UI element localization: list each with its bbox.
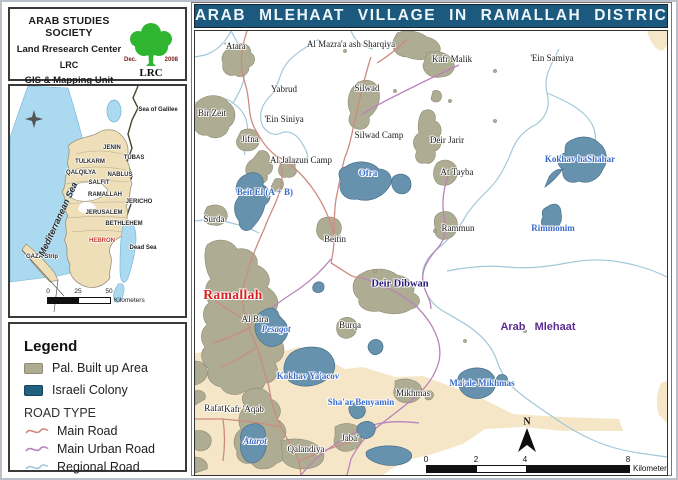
map-label-place: Silwad Camp — [355, 130, 404, 140]
legend-item-main-road: Main Road — [24, 424, 117, 438]
map-title: ARAB MLEHAAT VILLAGE IN RAMALLAH DISTRIC… — [194, 4, 668, 28]
map-label-place: 'Atara — [224, 41, 246, 51]
map-label-place: Yabrud — [271, 84, 297, 94]
inset-label: JERUSALEM — [85, 210, 122, 216]
map-label-place: Al Bira — [242, 314, 269, 324]
legend-item-colony: Israeli Colony — [24, 383, 128, 397]
scale-bar-tick: 0 — [424, 455, 428, 464]
regional-road-swatch-icon — [24, 461, 50, 473]
scale-bar-tick: 4 — [523, 455, 527, 464]
legend-item-label: Regional Road — [57, 460, 140, 474]
logo-date: Dec. 2008 — [124, 57, 178, 63]
org-abbr: LRC — [14, 60, 124, 70]
north-label: N — [523, 417, 530, 428]
map-label-place: Surda — [204, 214, 225, 224]
map-label-place: Al Mazra'a ash Sharqiya — [307, 39, 395, 49]
legend-item-label: Main Road — [57, 424, 117, 438]
header-panel: ARAB STUDIES SOCIETY Land Rresearch Cent… — [8, 7, 187, 81]
inset-scale-tick: 25 — [74, 288, 81, 295]
map-label-place: 'Ein Samiya — [530, 53, 573, 63]
map-graphics — [195, 31, 667, 475]
logo-date-year: 2008 — [165, 57, 178, 63]
builtup-swatch — [24, 363, 43, 374]
locator-geography — [10, 86, 185, 316]
map-label-place: Kafr Malik — [432, 54, 472, 64]
legend-item-label: Main Urban Road — [57, 442, 155, 456]
map-label-place: Rammun — [442, 223, 475, 233]
map-label-place: Mikhmas — [396, 388, 430, 398]
map-label-colony: Ma'ale Mikhmas — [449, 378, 514, 388]
map-label-place: Jaba' — [341, 433, 359, 443]
scale-bar — [426, 465, 630, 473]
sea-of-galilee-shape — [107, 100, 121, 122]
map-label-colony: Kokhav Ya'acov — [277, 371, 339, 381]
inset-scale-tick: 0 — [46, 288, 50, 295]
legend-title: Legend — [24, 338, 77, 355]
inset-label: JERICHO — [126, 199, 153, 205]
inset-label: RAMALLAH — [88, 192, 122, 198]
legend-roadtype-title: ROAD TYPE — [24, 406, 96, 420]
map-label-place: 'Ein Siniya — [264, 114, 303, 124]
org-title: ARAB STUDIES SOCIETY — [14, 15, 124, 39]
map-label-colony: Kokhav haShahar — [545, 154, 615, 164]
logo-caption: LRC — [122, 67, 180, 79]
scale-bar-segment — [477, 466, 526, 472]
map-label-special: Arab Mlehaat — [500, 321, 575, 333]
org-subtitle: Land Rresearch Center — [14, 44, 124, 55]
legend-item-main-urban-road: Main Urban Road — [24, 442, 155, 456]
map-label-colony: Sha'ar Benyamin — [328, 397, 395, 407]
locator-map: Sea of GalileeJENINTUBASTULKARMQALQILYAN… — [8, 84, 187, 318]
legend-item-label: Pal. Built up Area — [52, 361, 148, 375]
map-label-place: Jifna — [241, 134, 259, 144]
map-label-place: Silwad — [354, 83, 379, 93]
legend: Legend Pal. Built up Area Israeli Colony… — [8, 322, 187, 472]
legend-item-regional-road: Regional Road — [24, 460, 140, 474]
dead-sea-shape — [120, 222, 136, 283]
inset-scale-tick: 50 — [105, 288, 112, 295]
inset-label: NABLUS — [108, 172, 133, 178]
header-text: ARAB STUDIES SOCIETY Land Rresearch Cent… — [14, 15, 124, 86]
map-label-place: Rafat — [204, 403, 224, 413]
inset-label: HEBRON — [89, 238, 115, 244]
map-label-place: Deir Jarir — [430, 135, 464, 145]
inset-label: JENIN — [103, 145, 121, 151]
map-label-place: Beitin — [324, 234, 346, 244]
scale-bar-tick: 2 — [474, 455, 478, 464]
legend-item-label: Israeli Colony — [52, 383, 128, 397]
main-urban-road-swatch-icon — [24, 443, 50, 455]
legend-item-builtup: Pal. Built up Area — [24, 361, 148, 375]
inset-label: Sea of Galilee — [138, 107, 177, 113]
logo-date-month: Dec. — [124, 57, 137, 63]
map-label-colony: Beit El (A + B) — [237, 187, 293, 197]
map-label-place: Bir Zeit — [198, 108, 226, 118]
map-label-special: Deir Dibwan — [371, 279, 428, 290]
inset-scale-bar-graphic — [47, 297, 111, 304]
inset-label: SALFIT — [89, 180, 110, 186]
scale-bar-unit: Kilometers — [633, 464, 668, 473]
main-map: 'AtaraAl Mazra'a ash SharqiyaKafr Malik'… — [194, 30, 668, 476]
inset-scale-unit: Kilometers — [114, 297, 145, 304]
map-label-special: Ramallah — [203, 287, 262, 303]
map-label-place: Kafr 'Aqab — [224, 404, 264, 414]
page: ARAB STUDIES SOCIETY Land Rresearch Cent… — [0, 0, 678, 480]
map-label-place: Burqa — [339, 320, 361, 330]
inset-label: BETHLEHEM — [105, 221, 142, 227]
map-label-place: At Tayba — [441, 167, 474, 177]
north-arrow-icon — [518, 428, 536, 452]
scale-bar-tick: 8 — [626, 455, 630, 464]
map-label-place: Al Jalazun Camp — [270, 155, 332, 165]
map-label-place: Qalandiya — [288, 444, 325, 454]
map-label-colony: Atarot — [243, 436, 267, 446]
colony-swatch — [24, 385, 43, 396]
inset-label: Dead Sea — [129, 245, 156, 251]
lrc-logo: Dec. 2008 LRC — [122, 19, 180, 77]
inset-label: TUBAS — [124, 155, 145, 161]
map-label-colony: Pesagot — [262, 324, 291, 334]
main-road-swatch-icon — [24, 425, 50, 437]
map-label-colony: Rimmonim — [531, 223, 575, 233]
map-label-colony: Ofra — [359, 168, 378, 178]
